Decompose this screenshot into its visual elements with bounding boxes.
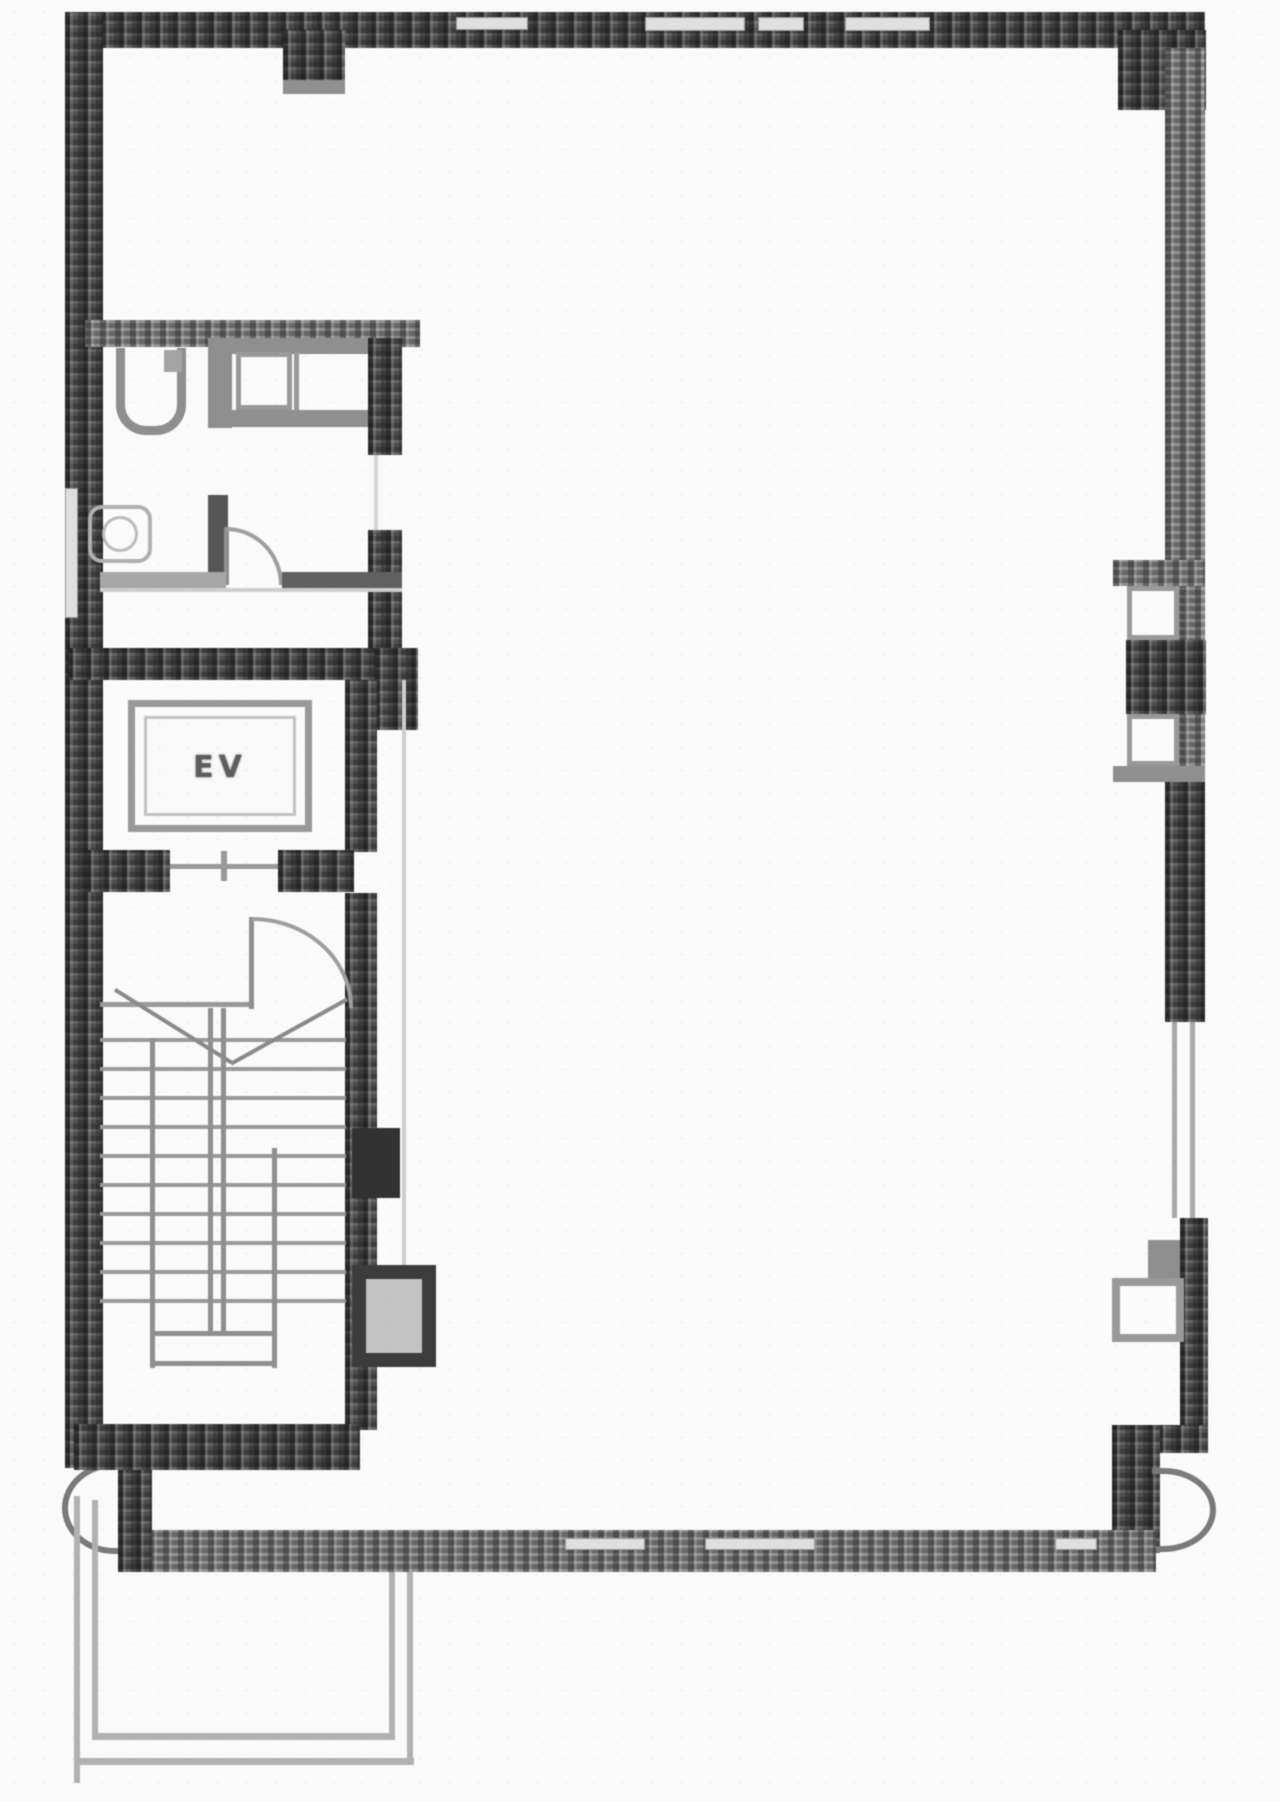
bay-window-bottom-frame — [1113, 766, 1205, 782]
entrance-porch-left-inner — [92, 1500, 98, 1740]
window-slit — [1055, 1538, 1097, 1550]
vestibule-wall — [118, 1456, 152, 1572]
floor-edge-line — [100, 588, 402, 592]
toilet-bowl — [102, 516, 138, 552]
rounded-corner-wall — [1152, 1468, 1216, 1552]
elevator-door-center-tick — [221, 851, 227, 881]
elevator-shaft-corner — [375, 648, 418, 730]
wall-pillar — [352, 1128, 400, 1198]
entrance-porch-right-outer — [407, 1572, 413, 1765]
window-slit — [565, 1538, 645, 1550]
core-wall-upper — [368, 338, 402, 455]
bay-window-pillar — [1126, 640, 1206, 714]
wc-bottom-wall — [282, 572, 402, 588]
door-swing-arc — [252, 917, 353, 1008]
door-opening-line — [374, 455, 378, 530]
right-wall-lower-pillar — [1180, 1218, 1208, 1443]
counter-divider-line — [294, 352, 299, 410]
door-swing-arc — [226, 527, 283, 585]
wall-face-line — [402, 680, 406, 1265]
urinal-flush-valve — [164, 350, 182, 372]
right-window-line — [1190, 1022, 1195, 1218]
stair-return-rail — [152, 1361, 276, 1366]
window-slit — [645, 17, 745, 31]
window-slit — [456, 17, 528, 30]
right-wall-middle — [1165, 782, 1205, 1022]
entrance-porch-bottom-inner — [92, 1733, 392, 1740]
stair-break-line — [114, 988, 232, 1064]
window-slit — [845, 17, 930, 31]
bay-window-top-frame — [1113, 560, 1205, 586]
elevator-shaft-top-wall — [68, 648, 402, 680]
ev-label: EV — [193, 750, 247, 785]
stair-bottom-wall — [74, 1424, 360, 1470]
duct-pillar-window — [352, 1265, 436, 1367]
stair-stringer — [150, 1038, 155, 1368]
window-slit — [65, 488, 78, 618]
top-wall-pillar — [283, 30, 345, 82]
window-slit — [705, 1538, 815, 1550]
bay-window-slit — [1127, 714, 1179, 766]
bottom-wall — [148, 1530, 1156, 1572]
sink-basin — [236, 352, 292, 410]
elevator-door-jamb — [278, 850, 354, 892]
entrance-porch-left-outer — [74, 1496, 80, 1783]
window-slit — [758, 17, 804, 31]
sink-counter-bottom — [208, 410, 392, 427]
floor-plan: EV — [0, 0, 1280, 1802]
elevator-shaft-right-wall — [345, 680, 377, 852]
right-window-line — [1172, 1022, 1177, 1218]
entrance-porch-bottom-outer — [74, 1758, 414, 1765]
bay-window-top-frame — [1148, 1240, 1180, 1280]
hall-floor-line — [100, 1002, 250, 1007]
stair-center-rail — [208, 1008, 213, 1334]
left-wall — [65, 12, 103, 1468]
stair-return-rail — [152, 1331, 276, 1336]
elevator-car-inner: EV — [144, 716, 296, 816]
elevator-car: EV — [128, 700, 312, 832]
bay-window-slit — [1112, 1278, 1184, 1342]
elevator-door-jamb — [86, 850, 170, 892]
entrance-porch-right-inner — [389, 1572, 395, 1740]
top-wall — [65, 12, 1205, 48]
bay-window-slit — [1127, 586, 1179, 640]
wc-bottom-wall — [100, 572, 226, 588]
top-wall-pillar-base — [283, 80, 345, 94]
